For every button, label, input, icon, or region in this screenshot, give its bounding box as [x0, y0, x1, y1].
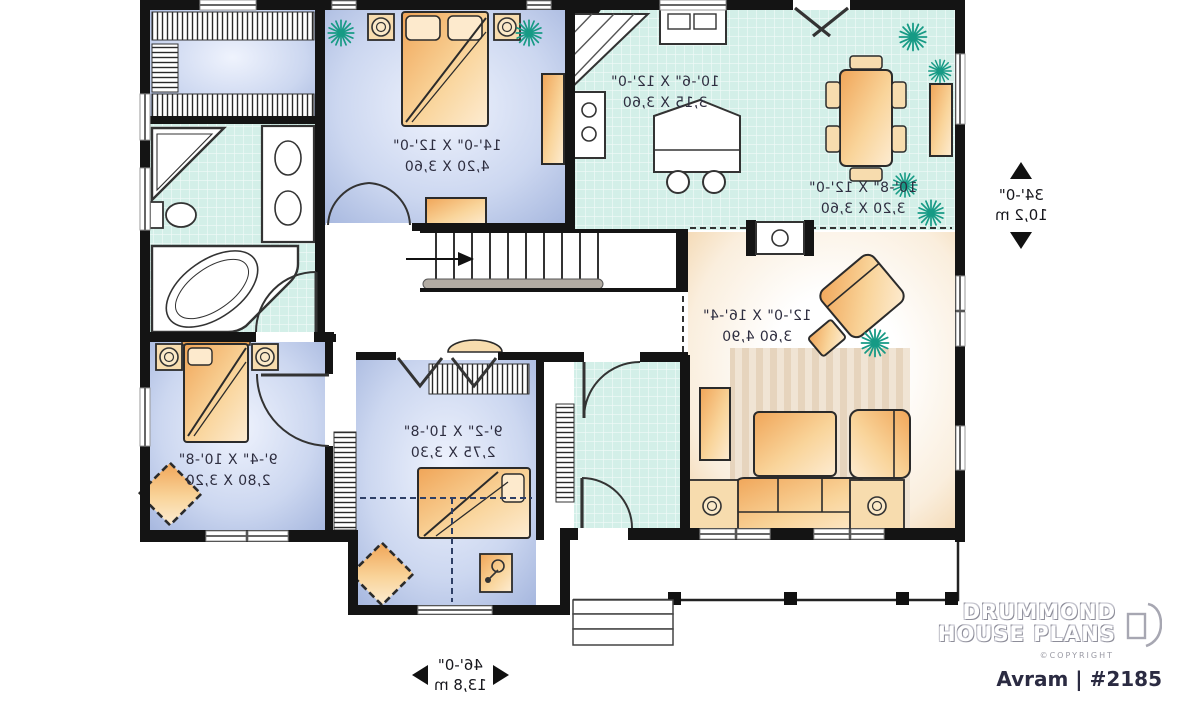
bench [426, 198, 486, 226]
foyer-closet [556, 404, 574, 502]
porch-step [573, 629, 673, 645]
pillow [188, 348, 212, 365]
room-dim-imperial: 9'-2" X 10'-8" [378, 422, 528, 443]
pillow [448, 16, 482, 40]
stairs [406, 232, 678, 289]
plant-icon [862, 330, 889, 357]
plant-icon [900, 24, 927, 51]
dimension-depth: 34'-0" 10,2 m [995, 162, 1048, 249]
foyer-floor [574, 362, 680, 528]
sofa [734, 478, 866, 536]
room-label-kitchen: 10'-6" X 12'-0" 3,15 X 3,60 [590, 72, 740, 114]
walkin-shelves [152, 44, 178, 92]
room-dim-metric: 2,80 X 3,20 [153, 471, 303, 492]
brand-name: DRUMMOND HOUSE PLANS [938, 601, 1116, 645]
room-dim-imperial: 10'-8" X 12'-0" [788, 178, 938, 199]
front-door-opening [578, 528, 628, 540]
arrow-right-icon [493, 665, 509, 685]
toilet-tank [150, 202, 163, 228]
width-feet: 46'-0" [434, 655, 487, 675]
room-dim-imperial: 14'-0" X 12'-0" [372, 136, 522, 157]
patio-door-opening [793, 0, 850, 10]
fireplace [756, 222, 804, 254]
armchair [850, 410, 910, 478]
walkin-rail [152, 12, 314, 40]
dining-chair [850, 56, 882, 69]
dimension-width: 46'-0" 13,8 m [412, 655, 509, 696]
cabinet [700, 388, 730, 460]
plan-model-number: Avram | #2185 [922, 667, 1162, 691]
room-dim-imperial: 10'-6" X 12'-0" [590, 72, 740, 93]
porch-post [896, 592, 909, 605]
sink-bowl [694, 14, 716, 29]
room-dim-imperial: 12'-0" X 16'-4" [682, 306, 832, 327]
pillow [406, 16, 440, 40]
brand-line1: DRUMMOND [938, 601, 1116, 623]
dining-table [840, 70, 892, 166]
drummond-logo-icon [1124, 598, 1162, 648]
plant-icon [929, 60, 952, 83]
room-dim-metric: 2,75 X 3,30 [378, 443, 528, 464]
dining-chair [892, 82, 906, 108]
room-label-dining: 10'-8" X 12'-0" 3,20 X 3,60 [788, 178, 938, 220]
hall-console [448, 340, 502, 352]
sink-bowl [668, 14, 690, 29]
dining-chair [892, 126, 906, 152]
brand-line2: HOUSE PLANS [938, 623, 1116, 645]
dresser [542, 74, 564, 164]
dining-chair [826, 126, 840, 152]
buffet [930, 84, 952, 156]
porch-step [573, 600, 673, 614]
room-label-bedroom3: 9'-2" X 10'-8" 2,75 X 3,30 [378, 422, 528, 464]
brand-block: DRUMMOND HOUSE PLANS ©COPYRIGHT Avram | … [922, 598, 1162, 691]
porch-post [784, 592, 797, 605]
bedroom2-closet [334, 432, 356, 530]
arrow-up-icon [1010, 162, 1032, 179]
copyright-label: ©COPYRIGHT [922, 651, 1114, 660]
vanity-sink [275, 191, 301, 225]
plant-icon [516, 20, 542, 46]
dining-chair [826, 82, 840, 108]
depth-feet: 34'-0" [995, 185, 1048, 205]
vanity-sink [275, 141, 301, 175]
arrow-down-icon [1010, 232, 1032, 249]
plant-icon [328, 20, 354, 46]
room-dim-metric: 3,20 X 3,60 [788, 199, 938, 220]
island-stool [703, 171, 725, 193]
depth-meters: 10,2 m [995, 205, 1048, 225]
room-label-bedroom2: 9'-4" X 10'-8" 2,80 X 3,20 [153, 450, 303, 492]
toilet [166, 203, 196, 227]
coffee-table [754, 412, 836, 476]
room-label-master-bedroom: 14'-0" X 12'-0" 4,20 X 3,60 [372, 136, 522, 178]
porch [573, 542, 958, 645]
stair-stringer [423, 279, 603, 289]
porch-step [573, 614, 673, 629]
room-dim-imperial: 9'-4" X 10'-8" [153, 450, 303, 471]
island-stool [667, 171, 689, 193]
arrow-left-icon [412, 665, 428, 685]
width-meters: 13,8 m [434, 675, 487, 695]
room-dim-metric: 3,15 X 3,60 [590, 93, 740, 114]
room-dim-metric: 3,60 4,90 [682, 327, 832, 348]
room-dim-metric: 4,20 X 3,60 [372, 157, 522, 178]
room-label-living: 12'-0" X 16'-4" 3,60 4,90 [682, 306, 832, 348]
floor-plan-sheet: 14'-0" X 12'-0" 4,20 X 3,60 10'-6" X 12'… [0, 0, 1200, 711]
